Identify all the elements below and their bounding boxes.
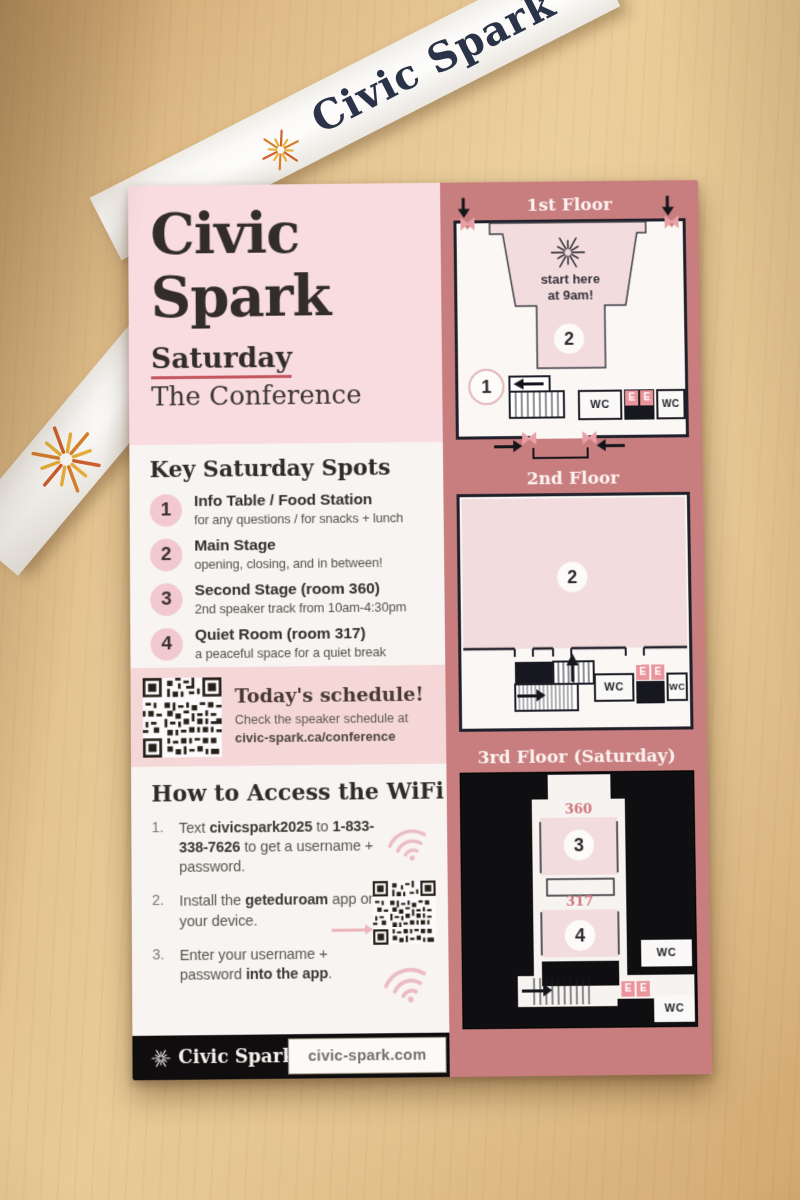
brand-title: Civic Spark [150, 201, 441, 330]
key-spots-heading: Key Saturday Spots [150, 454, 430, 483]
entrance-vestibule [532, 447, 588, 459]
event-day: Saturday [151, 341, 292, 380]
arrow-to-qr-icon [332, 928, 366, 931]
entrance-arrow-icon [605, 444, 625, 447]
room-317-label: 317 [533, 894, 626, 910]
brand-title-line2: Spark [150, 263, 330, 331]
elevator-label: E [651, 665, 664, 680]
elevator-label: E [637, 981, 650, 997]
spot-item-info-table: 1 Info Table / Food Station for any ques… [150, 490, 430, 527]
starburst-icon [251, 120, 310, 179]
key-spots-section: Key Saturday Spots 1 Info Table / Food S… [129, 442, 445, 668]
spot-title: Second Stage (room 360) [195, 580, 407, 600]
wc-room: WC [641, 939, 692, 966]
schedule-text: Check the speaker schedule at civic-spar… [235, 710, 425, 747]
schedule-qr-code [143, 677, 222, 757]
room-360-label: 360 [532, 802, 625, 818]
card-header: Civic Spark Saturday The Conference [128, 183, 443, 445]
stairs-arrow-icon [517, 694, 537, 697]
elevator-label: E [621, 981, 634, 997]
step-number: 3. [152, 947, 170, 987]
spot-number-badge: 2 [150, 539, 182, 572]
lanyard-brand-text: Civic Spark [299, 0, 568, 154]
spot-title: Quiet Room (room 317) [195, 625, 386, 645]
starburst-icon [151, 1047, 171, 1068]
wc-room: WC [594, 673, 635, 702]
wifi-signal-icon [386, 821, 435, 862]
floor-plan-2: 2 WC E E WC [456, 492, 693, 732]
step-text: Text civicspark2025 to 1-833-338-7626 to… [179, 818, 383, 879]
elevator-block [617, 998, 654, 1023]
wc-room: WC [578, 390, 623, 421]
spot-item-main-stage: 2 Main Stage opening, closing, and in be… [150, 535, 430, 572]
spot-desc: 2nd speaker track from 10am-4:30pm [195, 599, 407, 616]
eduroam-qr-code [373, 880, 436, 944]
spot-number-badge: 3 [150, 583, 182, 616]
event-subtitle: The Conference [151, 380, 442, 413]
brand-title-line1: Civic [150, 200, 299, 268]
floor-1-label: 1st Floor [453, 194, 685, 216]
photo-scene: Civic Spark Civi [0, 0, 800, 1200]
schedule-section: Today's schedule! Check the speaker sche… [130, 665, 446, 767]
entrance-arrow-icon [494, 445, 514, 448]
floor-maps-panel: 1st Floor [440, 180, 712, 1077]
wifi-step-1: 1. Text civicspark2025 to 1-833-338-7626… [152, 818, 383, 879]
spot-desc: opening, closing, and in between! [194, 555, 382, 572]
elevator-label: E [640, 390, 653, 405]
wifi-section: How to Access the WiFi 1. Text civicspar… [131, 764, 449, 1036]
wifi-step-3: 3. Enter your username + password into t… [152, 944, 384, 986]
floor-plan-1: start hereat 9am! 2 1 WC E E WC [453, 218, 689, 440]
wifi-signal-icon [382, 959, 437, 1005]
second-stage-marker: 3 [563, 830, 594, 861]
conference-card: Civic Spark Saturday The Conference Key … [128, 180, 712, 1080]
step-number: 2. [152, 893, 170, 932]
starburst-icon [13, 406, 120, 513]
spot-number-badge: 1 [150, 494, 182, 527]
elevator-label: E [636, 665, 649, 680]
card-left-column: Civic Spark Saturday The Conference Key … [128, 183, 450, 1081]
wc-room: WC [666, 672, 688, 701]
floor-2-label: 2nd Floor [456, 468, 690, 491]
schedule-heading: Today's schedule! [235, 683, 424, 707]
main-entrance-gap [530, 433, 588, 439]
start-here-note: start hereat 9am! [454, 270, 687, 305]
entry-arrow-icon [666, 196, 669, 208]
stairs-arrow-icon [522, 989, 544, 992]
spot-item-quiet-room: 4 Quiet Room (room 317) a peaceful space… [150, 624, 431, 662]
floor-plan-3: 360 3 317 4 WC E E WC [460, 770, 699, 1029]
main-stage-marker: 2 [554, 324, 584, 354]
wifi-heading: How to Access the WiFi [151, 778, 447, 808]
footer-url: civic-spark.com [288, 1037, 447, 1075]
entry-arrow-icon [462, 198, 465, 210]
quiet-room-marker: 4 [565, 920, 596, 951]
spot-desc: for any questions / for snacks + lunch [194, 510, 403, 527]
elevator-label: E [625, 390, 638, 405]
footer-brand: Civic Spark [178, 1046, 295, 1069]
spot-item-second-stage: 3 Second Stage (room 360) 2nd speaker tr… [150, 580, 430, 617]
elevator-block [636, 681, 665, 704]
wc-room: WC [654, 995, 695, 1022]
step-number: 1. [152, 820, 171, 879]
step-text: Install the geteduroam app on your devic… [179, 891, 383, 932]
wc-room: WC [656, 389, 686, 420]
step-text: Enter your username + password into the … [180, 944, 384, 986]
info-table-marker: 1 [468, 369, 505, 406]
wifi-step-2: 2. Install the geteduroam app on your de… [152, 891, 383, 933]
card-footer: Civic Spark civic-spark.com [132, 1033, 449, 1081]
floor-3-label: 3rd Floor (Saturday) [459, 746, 694, 769]
schedule-url: civic-spark.ca/conference [235, 728, 396, 745]
spot-title: Main Stage [194, 536, 382, 556]
spot-desc: a peaceful space for a quiet break [195, 644, 386, 661]
main-stage-marker: 2 [557, 562, 588, 593]
spot-number-badge: 4 [150, 628, 182, 661]
spot-title: Info Table / Food Station [194, 491, 403, 511]
